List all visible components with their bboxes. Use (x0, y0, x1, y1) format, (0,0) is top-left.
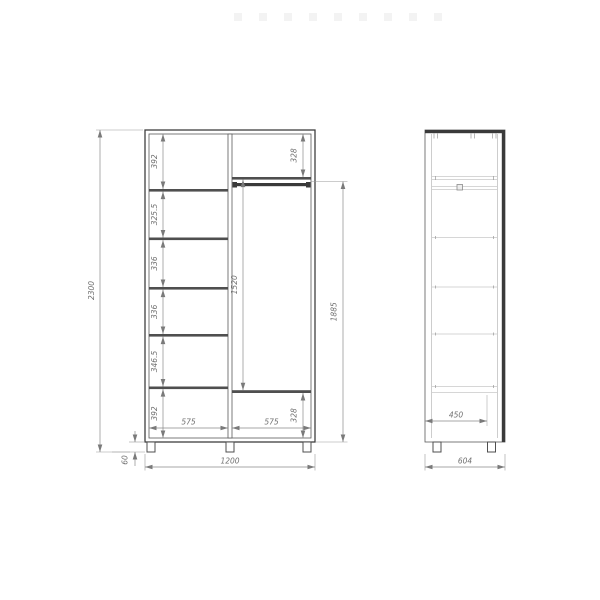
left-shelf-3 (149, 287, 228, 290)
rod-bracket-right (306, 182, 311, 188)
dim-label-left-width: 575 (181, 418, 196, 427)
side-feet (433, 442, 496, 452)
side-view: 450 604 (425, 130, 505, 471)
right-top-shelf (232, 177, 311, 180)
watermark-row (234, 13, 442, 21)
inner-depth-dimension: 450 (425, 395, 487, 426)
drawing-canvas: 392 325.5 336 336 346.5 392 328 1520 328 (0, 0, 600, 600)
left-shelf-4 (149, 334, 228, 337)
dim-label-hanging-space: 1520 (230, 275, 239, 294)
side-shelf-lines (432, 176, 497, 393)
overall-width-dimension: 1200 (145, 454, 315, 471)
rod-fitting-knob (457, 185, 463, 191)
front-feet (147, 442, 311, 452)
dim-label-section-1: 392 (150, 154, 159, 169)
front-foot-center (226, 442, 234, 452)
dim-label-section-5: 346.5 (150, 351, 159, 373)
front-view: 392 325.5 336 336 346.5 392 328 1520 328 (87, 130, 348, 471)
side-top-edge (425, 130, 505, 133)
left-shelf-2 (149, 238, 228, 241)
front-foot-left (147, 442, 155, 452)
side-top-ticks (434, 134, 496, 139)
rod-bracket-left (233, 182, 238, 188)
rod-height-dimension: 1885 (311, 182, 348, 443)
dim-label-right-width: 575 (264, 418, 279, 427)
left-shelf-1 (149, 189, 228, 192)
dim-label-overall-height: 2300 (87, 281, 96, 300)
side-back-edge (502, 130, 505, 442)
front-foot-right (303, 442, 311, 452)
dim-label-overall-depth: 604 (458, 457, 473, 466)
side-foot-back (488, 442, 496, 452)
plinth-height-dimension: 60 (112, 431, 145, 466)
dim-label-section-4: 336 (150, 304, 159, 319)
dim-label-inner-depth: 450 (449, 411, 464, 420)
overall-height-dimension: 2300 (87, 130, 145, 452)
dim-label-section-3: 336 (150, 256, 159, 271)
hanging-rod (233, 182, 311, 188)
left-shelf-5 (149, 387, 228, 390)
dim-label-overall-width: 1200 (220, 457, 239, 466)
right-bottom-shelf (232, 390, 311, 393)
dim-label-rod-height: 1885 (330, 302, 339, 321)
dim-label-right-top: 328 (290, 148, 299, 163)
technical-drawing: 392 325.5 336 336 346.5 392 328 1520 328 (0, 0, 600, 600)
left-section-dimensions: 392 325.5 336 336 346.5 392 (150, 134, 163, 438)
overall-depth-dimension: 604 (425, 454, 505, 471)
rod-bar (237, 183, 307, 186)
dim-label-plinth-height: 60 (121, 455, 130, 465)
dim-label-section-2: 325.5 (150, 204, 159, 226)
dim-label-section-6: 392 (150, 406, 159, 421)
side-foot-front (433, 442, 441, 452)
dim-label-right-bottom: 328 (290, 408, 299, 423)
